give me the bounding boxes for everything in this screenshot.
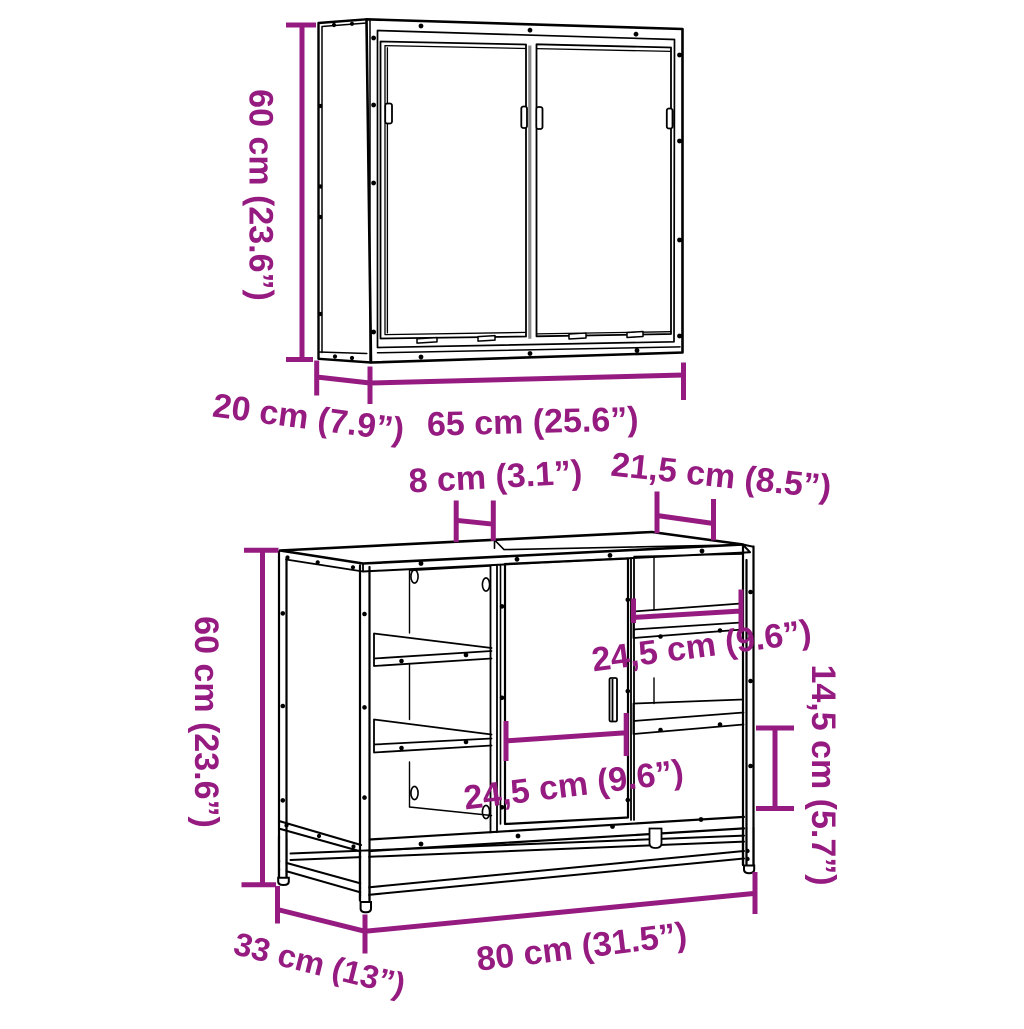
svg-text:65 cm (25.6”): 65 cm (25.6”) <box>426 400 639 444</box>
svg-text:60 cm (23.6”): 60 cm (23.6”) <box>242 89 280 301</box>
svg-text:60 cm (23.6”): 60 cm (23.6”) <box>187 616 225 828</box>
svg-text:14,5 cm (5.7”): 14,5 cm (5.7”) <box>804 664 842 885</box>
